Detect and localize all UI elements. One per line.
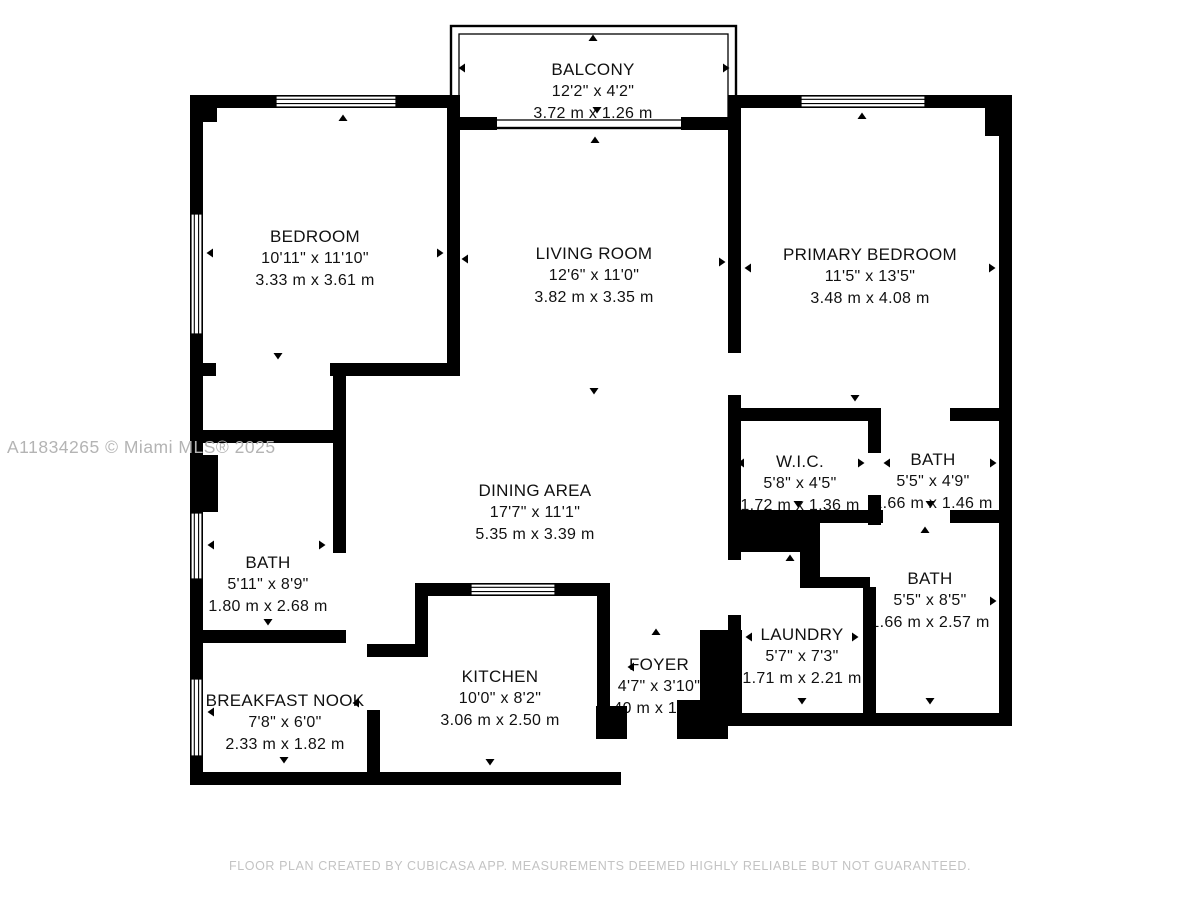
measurement-arrow-icon: [926, 698, 935, 705]
measurement-arrow-icon: [851, 395, 860, 402]
window: [471, 584, 555, 595]
measurement-arrow-icon: [590, 388, 599, 395]
measurement-arrow-icon: [600, 604, 609, 611]
window: [276, 96, 396, 107]
room-label-bedroom: BEDROOM 10'11" x 11'10" 3.33 m x 3.61 m: [165, 226, 465, 292]
mls-watermark: A11834265 © Miami MLS® 2025: [7, 437, 276, 458]
measurement-arrow-icon: [486, 759, 495, 766]
room-imperial-dims: 5'11" x 8'9": [118, 574, 418, 596]
room-name: LIVING ROOM: [444, 243, 744, 265]
room-label-dining-area: DINING AREA 17'7" x 11'1" 5.35 m x 3.39 …: [385, 480, 685, 546]
room-metric-dims: 3.82 m x 3.35 m: [444, 287, 744, 309]
measurement-arrow-icon: [280, 757, 289, 764]
room-imperial-dims: 4'7" x 3'10": [509, 676, 809, 698]
footer-disclaimer: FLOOR PLAN CREATED BY CUBICASA APP. MEAS…: [0, 859, 1200, 873]
measurement-arrow-icon: [208, 541, 215, 550]
room-name: FOYER: [509, 654, 809, 676]
room-imperial-dims: 11'5" x 13'5": [720, 266, 1020, 288]
room-name: BEDROOM: [165, 226, 465, 248]
room-metric-dims: 3.48 m x 4.08 m: [720, 288, 1020, 310]
measurement-arrow-icon: [791, 413, 800, 420]
room-metric-dims: 5.35 m x 3.39 m: [385, 524, 685, 546]
room-name: LAUNDRY: [652, 624, 952, 646]
window: [801, 96, 925, 107]
room-label-foyer: FOYER 4'7" x 3'10" 1.40 m x 1.16 m: [509, 654, 809, 720]
room-name: PRIMARY BEDROOM: [720, 244, 1020, 266]
room-imperial-dims: 12'6" x 11'0": [444, 265, 744, 287]
room-imperial-dims: 10'11" x 11'10": [165, 248, 465, 270]
room-name: BATH: [118, 552, 418, 574]
room-imperial-dims: 5'5" x 4'9": [783, 471, 1083, 493]
room-label-balcony: BALCONY 12'2" x 4'2" 3.72 m x 1.26 m: [443, 59, 743, 125]
room-name: BATH: [783, 449, 1083, 471]
room-metric-dims: 1.40 m x 1.16 m: [509, 698, 809, 720]
room-metric-dims: 1.66 m x 1.46 m: [783, 493, 1083, 515]
measurement-arrow-icon: [339, 115, 348, 122]
measurement-arrow-icon: [589, 35, 598, 42]
room-imperial-dims: 12'2" x 4'2": [443, 81, 743, 103]
room-metric-dims: 3.33 m x 3.61 m: [165, 270, 465, 292]
floor-plan-page: BALCONY 12'2" x 4'2" 3.72 m x 1.26 m BED…: [0, 0, 1200, 900]
room-imperial-dims: 5'5" x 8'5": [780, 590, 1080, 612]
room-metric-dims: 2.33 m x 1.82 m: [135, 734, 435, 756]
room-name: DINING AREA: [385, 480, 685, 502]
measurement-arrow-icon: [921, 527, 930, 534]
room-imperial-dims: 17'7" x 11'1": [385, 502, 685, 524]
measurement-arrow-icon: [591, 137, 600, 144]
room-label-bath-left: BATH 5'11" x 8'9" 1.80 m x 2.68 m: [118, 552, 418, 618]
room-metric-dims: 1.80 m x 2.68 m: [118, 596, 418, 618]
measurement-arrow-icon: [319, 541, 326, 550]
room-name: BALCONY: [443, 59, 743, 81]
measurement-arrow-icon: [786, 555, 795, 562]
room-label-bath-top: BATH 5'5" x 4'9" 1.66 m x 1.46 m: [783, 449, 1083, 515]
measurement-arrow-icon: [858, 113, 867, 120]
room-name: BATH: [780, 568, 1080, 590]
room-label-primary-bedroom: PRIMARY BEDROOM 11'5" x 13'5" 3.48 m x 4…: [720, 244, 1020, 310]
measurement-arrow-icon: [264, 619, 273, 626]
measurement-arrow-icon: [274, 353, 283, 360]
room-metric-dims: 3.72 m x 1.26 m: [443, 103, 743, 125]
room-label-living-room: LIVING ROOM 12'6" x 11'0" 3.82 m x 3.35 …: [444, 243, 744, 309]
